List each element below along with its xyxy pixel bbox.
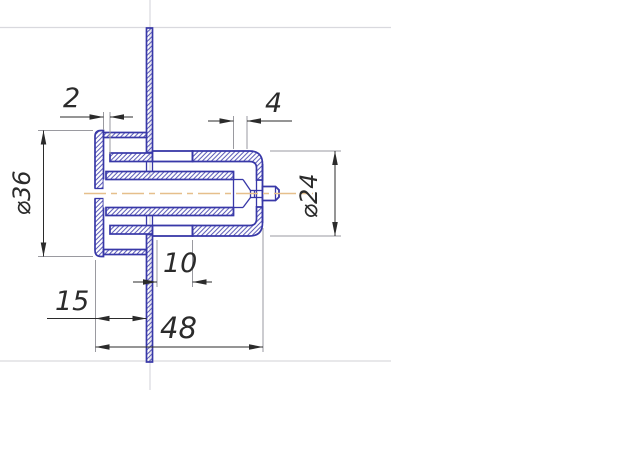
arrowhead: [41, 243, 47, 257]
funnel-chamfer: [243, 180, 251, 191]
arrowhead: [332, 151, 338, 165]
arrowhead: [96, 344, 110, 350]
dimension-value: 10: [163, 248, 197, 279]
dimension-value: 48: [160, 311, 197, 345]
dimension-value: ⌀36: [8, 171, 36, 216]
panel-lower-section: [147, 235, 153, 363]
arrowhead: [193, 279, 207, 285]
dimension-15: 15: [47, 260, 147, 352]
dimension-value: 2: [63, 83, 80, 114]
dimension-value: 4: [265, 88, 282, 119]
dimension-48: 48: [96, 228, 264, 352]
arrowhead: [110, 114, 124, 120]
arrowhead: [220, 118, 234, 124]
drawing-canvas: 2 4 ⌀36 ⌀24 10: [0, 0, 640, 463]
drawing-sheet: 2 4 ⌀36 ⌀24 10: [0, 0, 640, 463]
dimension-value: 15: [55, 286, 89, 317]
neck-top-wall: [110, 153, 153, 162]
arrowhead: [133, 316, 147, 322]
inner-sleeve-top: [106, 172, 234, 180]
cup-bottom-rim: [104, 250, 147, 255]
arrowhead: [247, 118, 261, 124]
sleeve-thread-bottom: [153, 226, 193, 237]
arrowhead: [90, 114, 104, 120]
dimension-4: 4: [208, 88, 292, 149]
funnel-chamfer: [243, 198, 251, 208]
arrowhead: [332, 222, 338, 236]
dimension-value: ⌀24: [295, 174, 323, 219]
sleeve-thread-top: [153, 151, 193, 162]
panel-upper-section: [147, 28, 153, 153]
inner-sleeve-bottom: [106, 208, 234, 216]
arrowhead: [249, 344, 263, 350]
neck-bottom-wall: [110, 226, 153, 235]
dimension-dia36: ⌀36: [8, 131, 93, 257]
arrowhead: [41, 131, 47, 145]
arrowhead: [96, 316, 110, 322]
dimension-10: 10: [133, 240, 212, 287]
